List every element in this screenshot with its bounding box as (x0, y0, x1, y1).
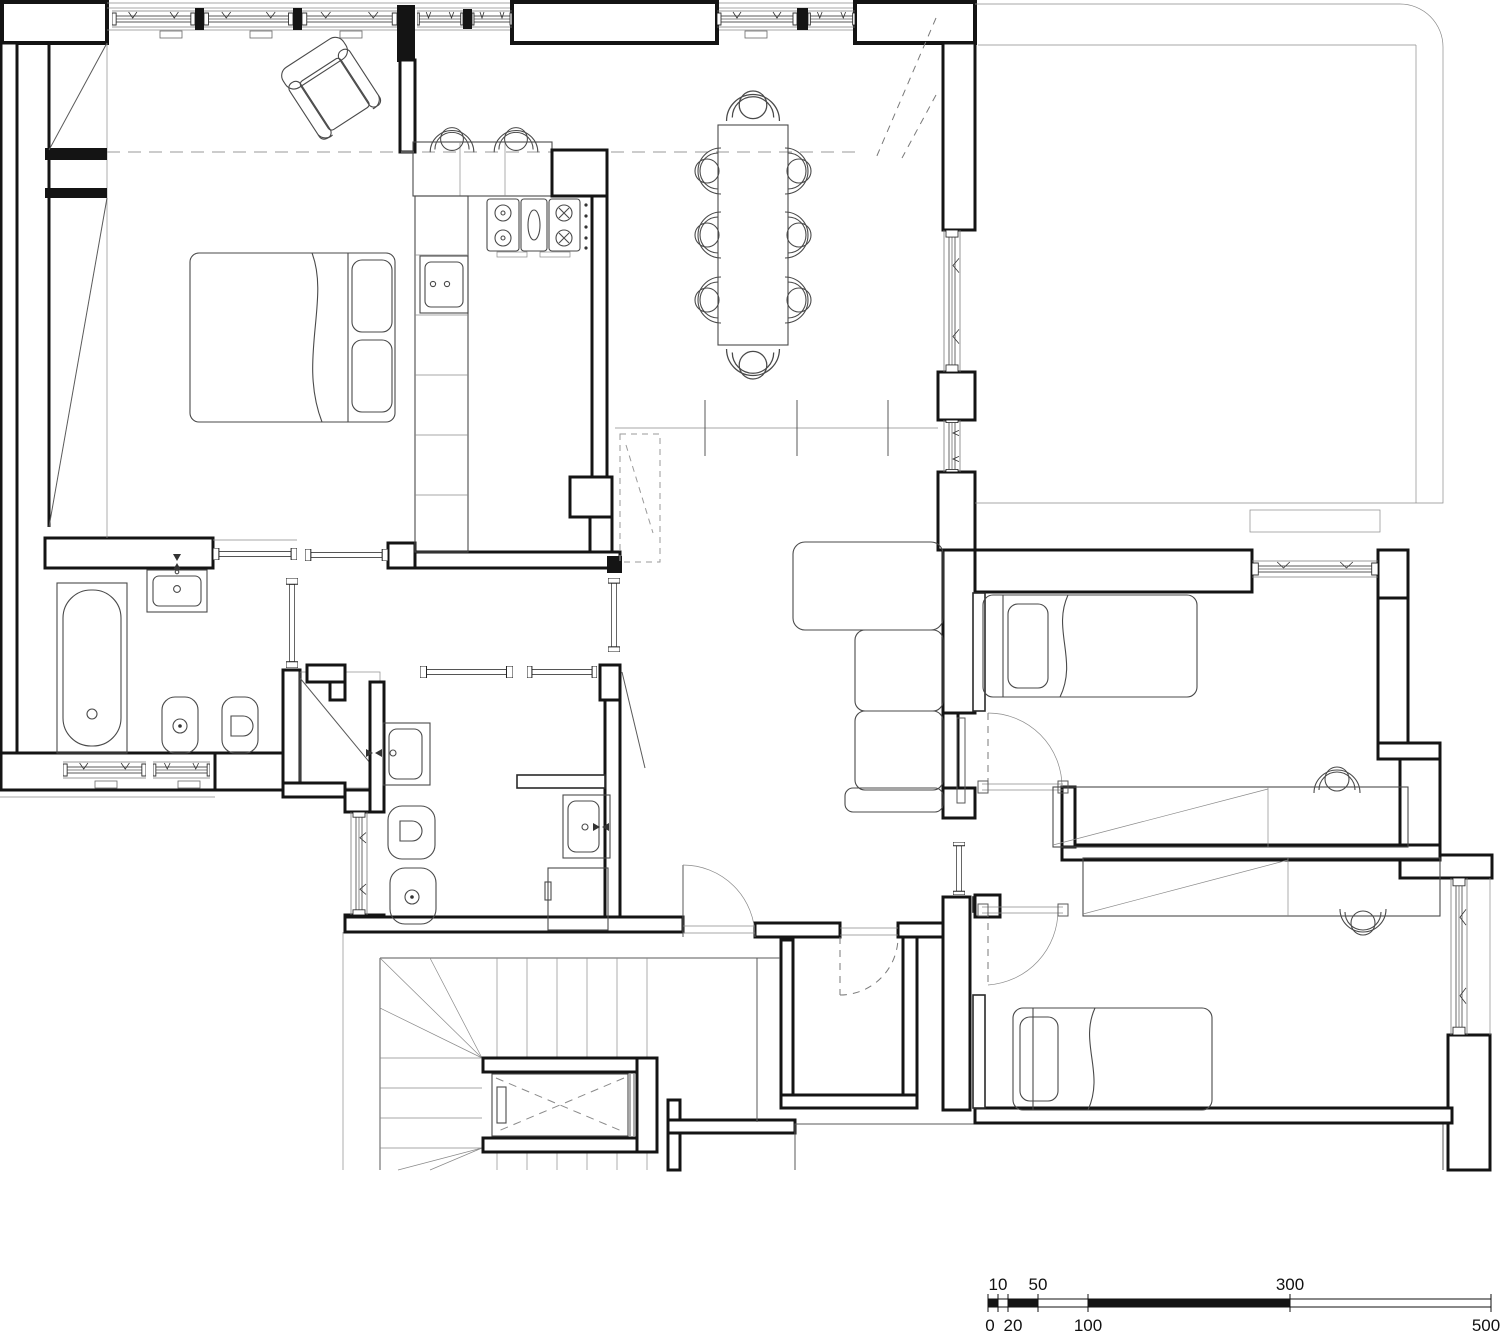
washbasin-icon (563, 795, 610, 858)
bathroom-2 (366, 723, 610, 930)
wall-segment (605, 665, 620, 932)
dining-chair-icon (695, 277, 721, 323)
desk-chair-icon (1340, 909, 1386, 935)
wall-segment (370, 682, 384, 812)
sliding-doors (213, 548, 965, 895)
dining-chair-icon (695, 148, 721, 194)
scale-bar: 10 50 300 0 20 100 500 (985, 1275, 1500, 1335)
bar-stool-icon (430, 128, 474, 153)
terrace (975, 4, 1443, 503)
wall-segment (345, 917, 683, 932)
wall-segment (215, 753, 283, 790)
bidet-icon (162, 697, 198, 753)
wall-segment (345, 790, 370, 812)
lower-floor-outline (795, 1124, 1443, 1170)
wall-segment (1, 43, 17, 755)
wall-segment (975, 550, 1252, 592)
door-leaf (622, 672, 645, 768)
windows (63, 11, 1467, 1035)
dining-chair-icon (785, 148, 811, 194)
elevator-icon (483, 1058, 657, 1152)
wall-segment (781, 940, 793, 1108)
wall-segment (570, 477, 612, 517)
dining-area (695, 91, 811, 379)
doors (622, 672, 1068, 995)
wall-segment (517, 775, 605, 788)
bedroom-2 (983, 595, 1408, 847)
wardrobe-icon (45, 43, 107, 538)
wall-segment (600, 665, 620, 700)
wall-pier (397, 5, 415, 62)
dining-chair-icon (727, 91, 780, 121)
wall-segment (1378, 743, 1440, 759)
scale-segment (988, 1299, 998, 1307)
wall-segment (943, 713, 958, 788)
wall-segment (1448, 1035, 1490, 1170)
living-room (793, 542, 943, 812)
dining-chair-icon (695, 212, 721, 258)
wall-segment (400, 60, 415, 152)
dining-chair-icon (785, 277, 811, 323)
wall-segment (283, 670, 300, 790)
wall-segment (938, 472, 975, 550)
scale-segment (1088, 1299, 1290, 1307)
toilet-icon (388, 806, 435, 859)
door-swing-icon (683, 865, 755, 937)
scale-label-0: 0 (985, 1316, 994, 1335)
wall-segment (330, 682, 345, 700)
wall-segment (590, 517, 612, 553)
bar-stool-icon (494, 128, 538, 153)
wall-segment (855, 2, 975, 43)
wall-segment (755, 923, 840, 937)
scale-label-50: 50 (1029, 1275, 1048, 1294)
floor-plan-canvas: 10 50 300 0 20 100 500 (0, 0, 1500, 1338)
reference-lines (107, 18, 938, 562)
wall-segment (943, 550, 975, 713)
dining-chair-icon (727, 349, 780, 379)
wall-segment (283, 783, 345, 797)
kitchen-sink-icon (420, 256, 468, 313)
wall-segment (668, 1100, 680, 1170)
wall-segment (938, 372, 975, 420)
wall-segment (2, 2, 107, 43)
master-bedroom (190, 33, 395, 422)
bedroom-3 (1013, 858, 1440, 1110)
wall-segment (592, 150, 607, 477)
wall-segment (943, 897, 970, 1110)
wall-segment (1378, 598, 1408, 746)
bathroom-1 (57, 554, 258, 753)
desk-icon (1083, 858, 1440, 916)
wall-segment (668, 1120, 795, 1133)
wall-segment (1378, 550, 1408, 598)
dining-table-icon (718, 125, 788, 345)
wall-segment (512, 2, 717, 43)
single-bed-icon (1013, 1008, 1212, 1110)
window-sill (1250, 510, 1380, 532)
scale-segment (1008, 1299, 1038, 1307)
bathtub-icon (57, 583, 127, 753)
dining-chair-icon (785, 212, 811, 258)
wall-segment (943, 43, 975, 230)
wall-segment (307, 665, 345, 682)
scale-label-10: 10 (989, 1275, 1008, 1294)
wall-segment (1062, 787, 1075, 847)
wall-segment (45, 538, 213, 568)
wall-segment (973, 995, 985, 1108)
desk-chair-icon (1314, 767, 1360, 793)
wall-segment (898, 923, 943, 937)
armchair-icon (278, 33, 383, 141)
scale-label-500: 500 (1472, 1316, 1500, 1335)
single-bed-icon (983, 595, 1197, 697)
scale-label-100: 100 (1074, 1316, 1102, 1335)
door-swing-icon (978, 713, 1068, 793)
wall-segment (388, 543, 415, 568)
gas-stove-icon (487, 199, 588, 257)
wall-segment (1, 753, 215, 790)
scale-label-20: 20 (1004, 1316, 1023, 1335)
wall-segment (407, 552, 620, 568)
wall-segment (903, 937, 917, 1108)
double-bed-icon (190, 253, 395, 422)
wall-segment (781, 1095, 917, 1108)
sofa-icon (793, 542, 943, 812)
exterior-walls (0, 2, 1492, 1170)
desk-icon (1053, 787, 1408, 847)
door-swing-icon (840, 928, 898, 995)
toilet-icon (222, 697, 258, 753)
scale-label-300: 300 (1276, 1275, 1304, 1294)
bar-stools (430, 128, 538, 153)
